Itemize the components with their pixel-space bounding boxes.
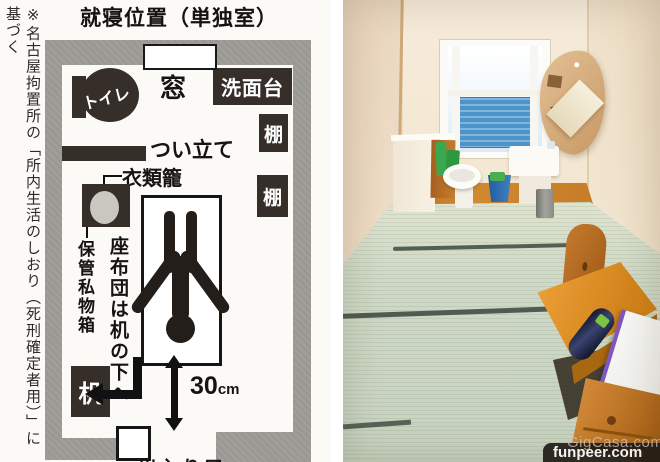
shelf-hook (574, 62, 580, 68)
shelf-lower-box: 棚 (257, 175, 288, 217)
wall-right (293, 40, 311, 434)
person-head (166, 314, 195, 343)
diagram-title: 就寝位置（単独室） (48, 2, 310, 32)
distance-arrow-head-down (165, 418, 183, 431)
distance-arrow-head-up (165, 355, 183, 368)
hanging-towel (546, 79, 604, 137)
desk-arrow-head (85, 383, 103, 405)
toilet-symbol: トイレ (72, 68, 142, 124)
bucket-cloth (490, 172, 505, 181)
distance-value: 30 (190, 372, 218, 400)
desk-arrow-horizontal (102, 390, 142, 399)
clothes-basket-oval (90, 191, 119, 224)
storage-box-label: 保管私物箱 (72, 240, 97, 350)
source-note: ※名古屋拘置所の「所内生活のしおり（死刑確定者用）」に基づく (0, 6, 42, 456)
photo-window (440, 40, 550, 158)
sleeping-area-outline (141, 195, 222, 366)
wall-bottom-left (45, 438, 119, 460)
window-label: 窓 (160, 68, 186, 105)
cell-photo: GigCasa.com funpeer.com (343, 0, 660, 462)
window-opening (143, 44, 217, 70)
sink-cup (547, 141, 555, 149)
toilet-cabinet (393, 138, 435, 212)
entrance-label: 出入り口 (138, 453, 226, 462)
partition-bar (62, 146, 146, 161)
watermark-gigcasa: GigCasa.com (567, 434, 660, 451)
distance-unit: cm (218, 381, 240, 398)
window-mullion-right (530, 46, 538, 152)
clothes-basket-label: 衣類籠 (122, 162, 182, 191)
toilet-bowl (443, 164, 481, 189)
thermos-label (595, 313, 611, 328)
washstand-box: 洗面台 (213, 68, 292, 105)
person-torso (172, 256, 189, 318)
distance-label: 30cm (190, 372, 240, 401)
partition-label: つい立て (150, 134, 234, 164)
toilet-seat (449, 169, 475, 182)
screenshot-root: 就寝位置（単独室） ※名古屋拘置所の「所内生活のしおり（死刑確定者用）」に基づく… (0, 0, 660, 462)
window-sash-bar (448, 90, 542, 96)
wall-left (45, 40, 62, 440)
door-opening (116, 426, 151, 461)
chest-knob (607, 416, 616, 425)
distance-arrow-shaft (171, 366, 178, 420)
window-blue-pane (457, 97, 535, 148)
trash-can (536, 189, 554, 218)
storage-connector-line (86, 227, 88, 238)
sink (509, 146, 559, 176)
shelf-upper-box: 棚 (259, 114, 288, 152)
wall-bottom-right-block (216, 432, 311, 462)
board-keyhole (582, 262, 588, 271)
cell-layout-diagram: 就寝位置（単独室） ※名古屋拘置所の「所内生活のしおり（死刑確定者用）」に基づく… (0, 0, 330, 462)
shelf-compartment (547, 74, 563, 88)
